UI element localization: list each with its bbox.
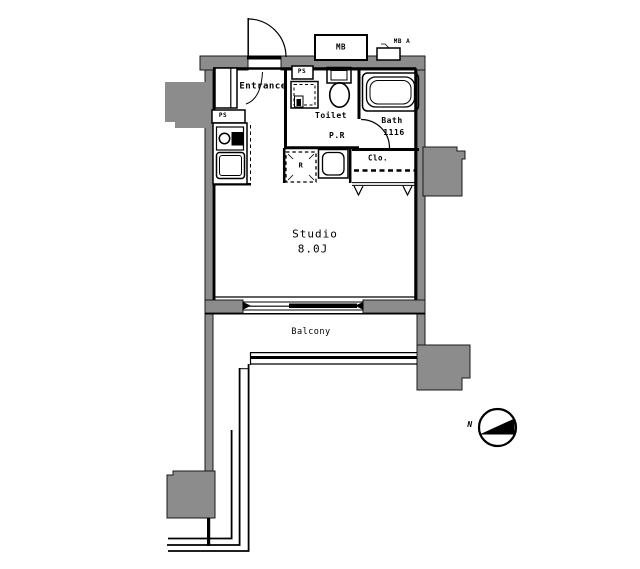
wall-sleeve-label: MB A [394,39,410,45]
left-wall [205,70,213,473]
entry-threshold [247,56,281,60]
powder-room-label: P.R [329,132,345,140]
structural-walls [165,56,470,518]
window-end-tick-left [243,302,251,310]
entry-door-swing-arc [248,19,286,57]
bottom-left-column [167,471,215,518]
south-wall-left-segment [205,300,243,313]
bath-fixtures [363,73,419,111]
neighbor-partition-lines [232,364,249,551]
north-arrow-icon [479,409,516,446]
toilet-bowl-icon [330,83,350,107]
north-label: N [467,421,472,429]
closet-fold-marks [354,186,412,195]
toilet-label: Toilet [315,112,347,120]
pipe-shaft-kitchen-label: PS [219,113,227,119]
floor-plan-canvas: Entrance PS PS MB MB A Toilet P.R Bath 1… [0,0,640,569]
window-end-tick-right [355,302,363,310]
refrigerator-label: R [299,163,304,170]
bottom-right-column [417,345,470,390]
pipe-shaft-top-label: PS [298,69,306,75]
entrance-fixtures [215,68,237,108]
right-outer-column [423,147,465,196]
bath-size-label: 1116 [383,129,404,137]
shoe-cabinet-icon [215,68,237,108]
pipe-shaft-kitchen-box [212,110,245,123]
floor-plan-drawing [0,0,640,569]
closet-label: Clo. [368,154,388,162]
wall-sleeve-box [377,48,400,60]
south-wall-right-segment [363,300,425,313]
balcony-window [243,302,363,310]
left-outer-column [165,82,208,128]
closet-front-line [352,183,417,186]
studio-label: Studio [292,229,338,240]
service-boxes [212,35,400,123]
balcony-label: Balcony [291,328,330,337]
studio-size-label: 8.0J [298,244,329,255]
column-stem [207,518,210,546]
meter-box-label: MB [336,43,346,51]
entrance-label: Entrance [239,83,286,92]
closet-and-nook [286,150,417,183]
grill-icon [232,132,244,146]
bath-label: Bath [381,117,402,125]
kitchen-fixtures [213,123,251,184]
window-sliding-panel [289,304,357,309]
